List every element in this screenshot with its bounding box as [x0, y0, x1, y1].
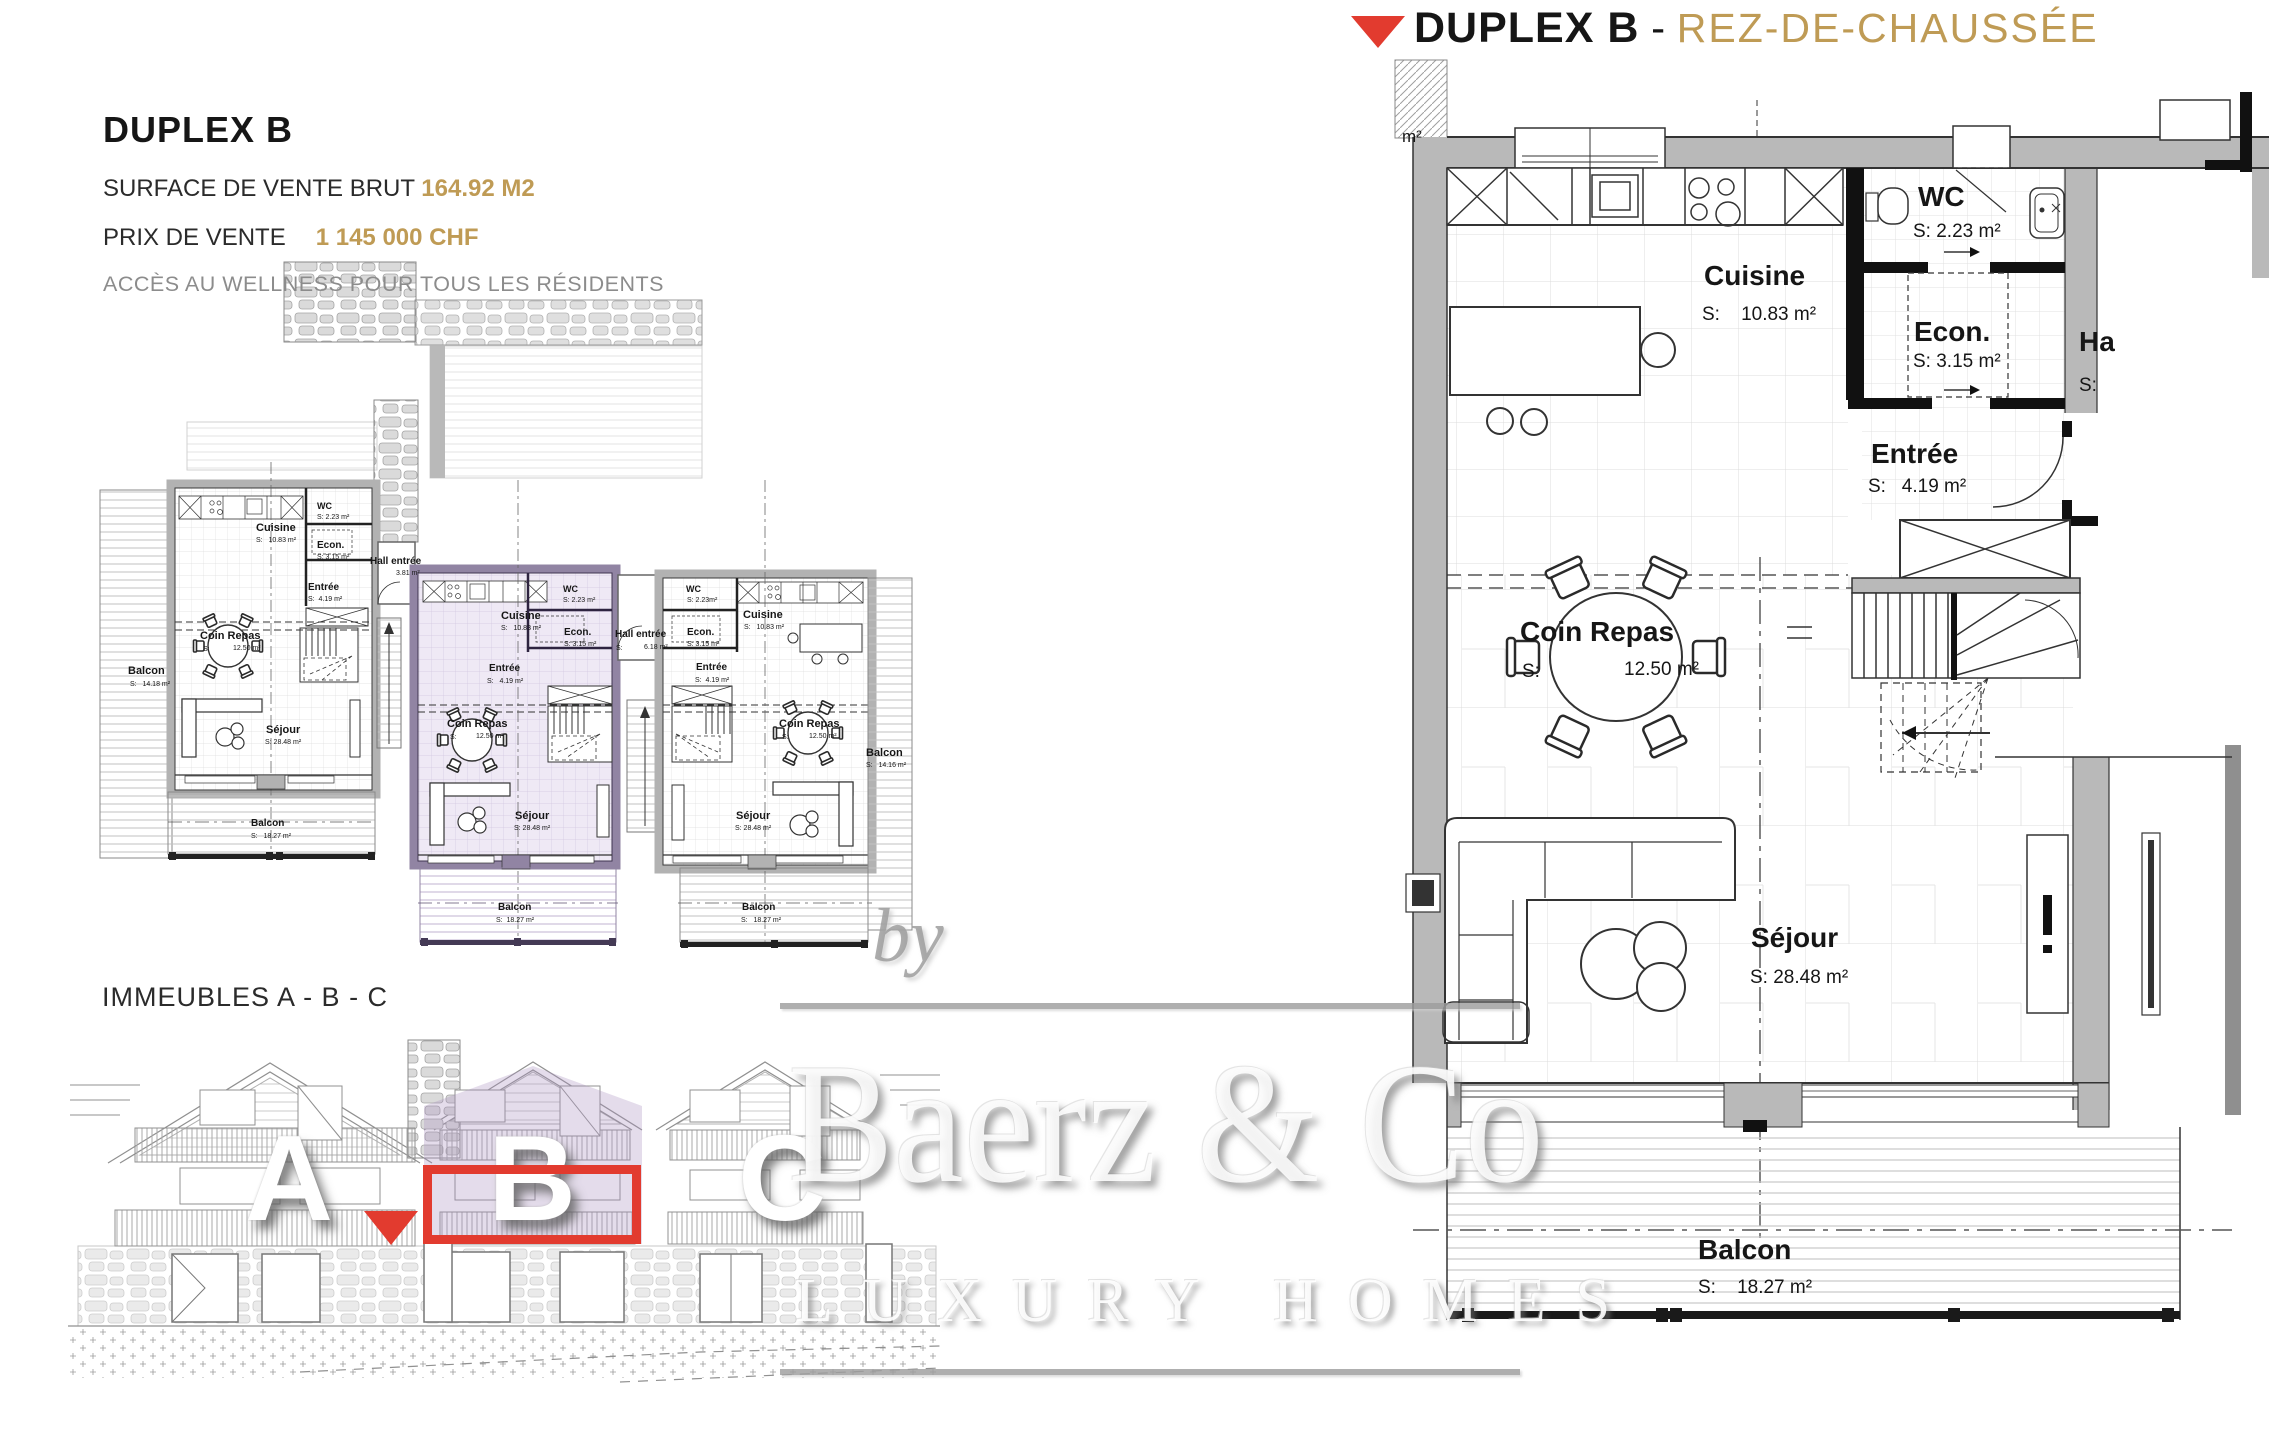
sp-right-econ-area: S: 3.15 m² — [687, 641, 719, 648]
page-title-floor: REZ-DE-CHAUSSÉE — [1677, 5, 2099, 51]
mp-hall-area: S: — [2079, 376, 2097, 395]
sp-right-coin-area: 12.50 m² — [809, 733, 837, 740]
sp-right-entree: Entrée — [696, 663, 727, 673]
mp-coin-s: S: — [1522, 662, 1540, 681]
sp-left-hall: Hall entrée — [370, 557, 421, 567]
sp-mid-wc: WC — [563, 585, 578, 594]
mp-cuisine: Cuisine — [1704, 262, 1805, 290]
sp-right-balcon-side: Balcon — [866, 748, 903, 759]
building-letter-c: C — [738, 1108, 826, 1248]
sp-mid-sejour: Séjour — [515, 811, 549, 822]
mp-hall: Ha — [2079, 328, 2115, 356]
sp-right-wc: WC — [686, 585, 701, 594]
mp-sejour-area: S: 28.48 m² — [1750, 968, 1848, 987]
price-value: 1 145 000 CHF — [316, 224, 479, 251]
sp-mid-coin: Coin Repas — [447, 719, 508, 730]
sp-right-cuisine: Cuisine — [743, 610, 783, 621]
watermark-rule-top — [780, 1003, 1520, 1009]
sp-mid-sejour-area: S: 28.48 m² — [514, 825, 550, 832]
header-marker-triangle-icon — [1351, 16, 1405, 48]
sp-left-sejour: Séjour — [266, 725, 300, 736]
sp-mid-cuisine: Cuisine — [501, 611, 541, 622]
sp-right-balcon-side-area: S: 14.16 m² — [866, 762, 906, 769]
mp-coin: Coin Repas — [1520, 618, 1674, 646]
sp-left-wc-area: S: 2.23 m² — [317, 514, 349, 521]
sp-right-coin-s: S: — [782, 734, 789, 741]
sp-left-entree-area: S: 4.19 m² — [308, 596, 342, 603]
main-floor-plan — [1395, 60, 2269, 1322]
sp-right-sejour: Séjour — [736, 811, 770, 822]
small-site-plan — [100, 262, 912, 948]
highlighted-unit-box — [423, 1165, 641, 1244]
mp-partial-m2: m² — [1402, 128, 1422, 145]
sp-mid-balcon: Balcon — [498, 903, 531, 913]
sp-left-balcon-area: S: 18.27 m² — [251, 833, 291, 840]
sp-mid-econ: Econ. — [564, 628, 591, 638]
mp-econ: Econ. — [1914, 318, 1990, 346]
sp-right-cuisine-area: S: 10.83 m² — [744, 624, 784, 631]
sp-left-coin: Coin Repas — [200, 631, 261, 642]
price-line: PRIX DE VENTE1 145 000 CHF — [103, 226, 478, 250]
sp-left-balcon-side: Balcon — [128, 666, 165, 677]
sp-mid-entree-area: S: 4.19 m² — [487, 678, 523, 685]
sp-left-coin-s: S: — [203, 646, 210, 653]
sp-right-wc-area: S: 2.23m² — [687, 597, 717, 604]
sp-mid-coin-s: S: — [450, 734, 457, 741]
mp-wc-area: S: 2.23 m² — [1913, 222, 2001, 241]
sp-mid-balcon-area: S: 18.27 m² — [496, 917, 534, 924]
sp-mid-hall-s: S: — [616, 645, 623, 652]
sp-mid-hall: Hall entrée — [615, 630, 666, 640]
sp-right-econ: Econ. — [687, 628, 714, 638]
floorplan-line-art — [0, 0, 2269, 1431]
price-label: PRIX DE VENTE — [103, 224, 286, 251]
sp-mid-entree: Entrée — [489, 664, 520, 674]
mp-cuisine-area: S: 10.83 m² — [1702, 305, 1816, 324]
sp-left-coin-area: 12.50 m² — [233, 645, 261, 652]
mp-sejour: Séjour — [1751, 924, 1838, 952]
sp-right-balcon: Balcon — [742, 903, 775, 913]
sp-left-cuisine-area: S: 10.83 m² — [256, 537, 296, 544]
page-title-separator: - — [1639, 4, 1676, 51]
sp-left-hall-area: 3.81 m² — [396, 570, 420, 577]
sp-left-balcon-side-area: S: 14.18 m² — [130, 681, 170, 688]
sp-mid-hall-area: 6.18 m² — [644, 644, 668, 651]
sp-left-econ: Econ. — [317, 541, 344, 551]
building-letter-a: A — [245, 1108, 333, 1248]
surface-line: SURFACE DE VENTE BRUT 164.92 M2 — [103, 177, 535, 201]
sp-left-entree: Entrée — [308, 583, 339, 593]
sp-mid-cuisine-area: S: 10.83 m² — [501, 625, 541, 632]
mp-econ-area: S: 3.15 m² — [1913, 352, 2001, 371]
watermark-rule-bottom — [780, 1369, 1520, 1375]
page: DUPLEX B - REZ-DE-CHAUSSÉE DUPLEX B SURF… — [0, 0, 2269, 1431]
sp-right-entree-area: S: 4.19 m² — [695, 677, 729, 684]
page-title: DUPLEX B - REZ-DE-CHAUSSÉE — [1414, 4, 2099, 53]
mp-coin-area: 12.50 m² — [1624, 660, 1699, 679]
mp-wc: WC — [1918, 183, 1965, 211]
sp-right-balcon-area: S: 18.27 m² — [741, 917, 781, 924]
sp-right-sejour-area: S: 28.48 m² — [735, 825, 771, 832]
sp-right-coin: Coin Repas — [779, 719, 840, 730]
mp-balcon: Balcon — [1698, 1236, 1791, 1264]
unit-title: DUPLEX B — [103, 112, 293, 148]
sp-mid-coin-area: 12.50 m² — [476, 733, 504, 740]
mp-balcon-area: S: 18.27 m² — [1698, 1278, 1812, 1297]
mp-entree: Entrée — [1871, 440, 1958, 468]
wellness-note: ACCÈS AU WELLNESS POUR TOUS LES RÉSIDENT… — [103, 274, 664, 296]
mp-entree-area: S: 4.19 m² — [1868, 477, 1966, 496]
sp-mid-econ-area: S: 3.15 m² — [564, 641, 596, 648]
sp-left-sejour-area: S: 28.48 m² — [265, 739, 301, 746]
surface-value: 164.92 M2 — [421, 175, 534, 202]
page-title-main: DUPLEX B — [1414, 4, 1639, 52]
sp-mid-wc-area: S: 2.23 m² — [563, 597, 595, 604]
immeubles-label: IMMEUBLES A - B - C — [102, 984, 388, 1011]
sp-left-balcon: Balcon — [251, 819, 284, 829]
surface-label: SURFACE DE VENTE BRUT — [103, 175, 415, 202]
sp-left-cuisine: Cuisine — [256, 523, 296, 534]
sp-left-econ-area: S: 3.15 m² — [317, 554, 349, 561]
sp-left-wc: WC — [317, 502, 332, 511]
elevation-marker-triangle-icon — [364, 1211, 418, 1245]
